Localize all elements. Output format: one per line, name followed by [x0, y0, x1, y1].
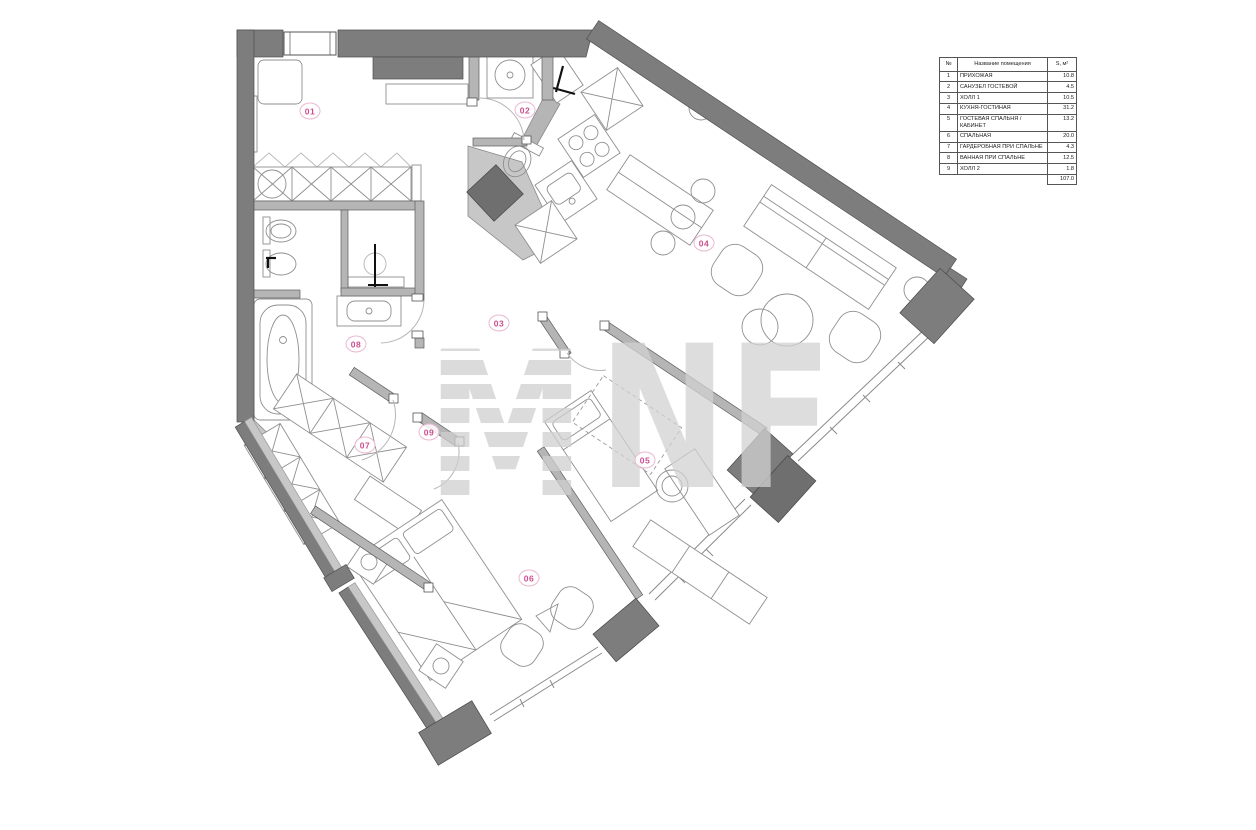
legend-cell-name: ХОЛЛ 1	[958, 93, 1048, 104]
legend-cell-num: 9	[940, 164, 958, 175]
legend-row: 4КУХНЯ-ГОСТИНАЯ31.2	[940, 103, 1077, 114]
legend-row: 1ПРИХОЖАЯ10.8	[940, 71, 1077, 82]
legend-cell-name: ВАННАЯ ПРИ СПАЛЬНЕ	[958, 153, 1048, 164]
room-label-02: 02	[515, 102, 536, 119]
legend-cell-name: САНУЗЕЛ ГОСТЕВОЙ	[958, 82, 1048, 93]
legend-cell-name: ГАРДЕРОБНАЯ ПРИ СПАЛЬНЕ	[958, 142, 1048, 153]
room-label-07: 07	[355, 437, 376, 454]
room-legend-table: № Название помещения S, м² 1ПРИХОЖАЯ10.8…	[939, 57, 1077, 185]
legend-header-num: №	[940, 58, 958, 72]
room-label-06: 06	[519, 570, 540, 587]
legend-row: 6СПАЛЬНАЯ20.0	[940, 131, 1077, 142]
legend-header-area: S, м²	[1048, 58, 1077, 72]
legend-cell-num: 4	[940, 103, 958, 114]
legend-cell-area: 13.2	[1048, 114, 1077, 131]
hall-wardrobe	[253, 153, 421, 201]
legend-row: 5ГОСТЕВАЯ СПАЛЬНЯ / КАБИНЕТ13.2	[940, 114, 1077, 131]
legend-total-area: 107.0	[1048, 174, 1077, 185]
room-label-03: 03	[489, 315, 510, 332]
room-label-05: 05	[635, 452, 656, 469]
legend-cell-name: КУХНЯ-ГОСТИНАЯ	[958, 103, 1048, 114]
watermark-letters-nf: NF	[598, 303, 833, 534]
legend-cell-num: 2	[940, 82, 958, 93]
room-label-01: 01	[300, 103, 321, 120]
legend-cell-area: 20.0	[1048, 131, 1077, 142]
legend-header-row: № Название помещения S, м²	[940, 58, 1077, 72]
legend-cell-area: 1.8	[1048, 164, 1077, 175]
legend-cell-name: СПАЛЬНАЯ	[958, 131, 1048, 142]
legend-cell-num: 5	[940, 114, 958, 131]
legend-header-name: Название помещения	[958, 58, 1048, 72]
legend-cell-num: 6	[940, 131, 958, 142]
entrance-door	[284, 32, 336, 55]
legend-cell-num: 1	[940, 71, 958, 82]
legend-row: 3ХОЛЛ 110.5	[940, 93, 1077, 104]
legend-cell-num: 8	[940, 153, 958, 164]
legend-row: 2САНУЗЕЛ ГОСТЕВОЙ4.5	[940, 82, 1077, 93]
floor-plan-page: M NF 010203040506070809 № Название помещ…	[0, 0, 1256, 830]
legend-cell-num: 3	[940, 93, 958, 104]
legend-cell-name: ПРИХОЖАЯ	[958, 71, 1048, 82]
room-label-09: 09	[419, 424, 440, 441]
legend-cell-name: ХОЛЛ 2	[958, 164, 1048, 175]
legend-cell-area: 10.5	[1048, 93, 1077, 104]
legend-total-row: 107.0	[940, 174, 1077, 185]
legend-cell-name: ГОСТЕВАЯ СПАЛЬНЯ / КАБИНЕТ	[958, 114, 1048, 131]
legend-row: 7ГАРДЕРОБНАЯ ПРИ СПАЛЬНЕ4.3	[940, 142, 1077, 153]
legend-cell-area: 12.5	[1048, 153, 1077, 164]
legend-row: 9ХОЛЛ 21.8	[940, 164, 1077, 175]
legend-cell-area: 4.3	[1048, 142, 1077, 153]
watermark-letter-m: M	[426, 309, 586, 547]
legend-cell-area: 4.5	[1048, 82, 1077, 93]
legend-row: 8ВАННАЯ ПРИ СПАЛЬНЕ12.5	[940, 153, 1077, 164]
legend-cell-area: 10.8	[1048, 71, 1077, 82]
legend-cell-area: 31.2	[1048, 103, 1077, 114]
room-label-04: 04	[694, 235, 715, 252]
watermark: M NF	[426, 303, 833, 547]
legend-cell-num: 7	[940, 142, 958, 153]
room-label-08: 08	[346, 336, 367, 353]
